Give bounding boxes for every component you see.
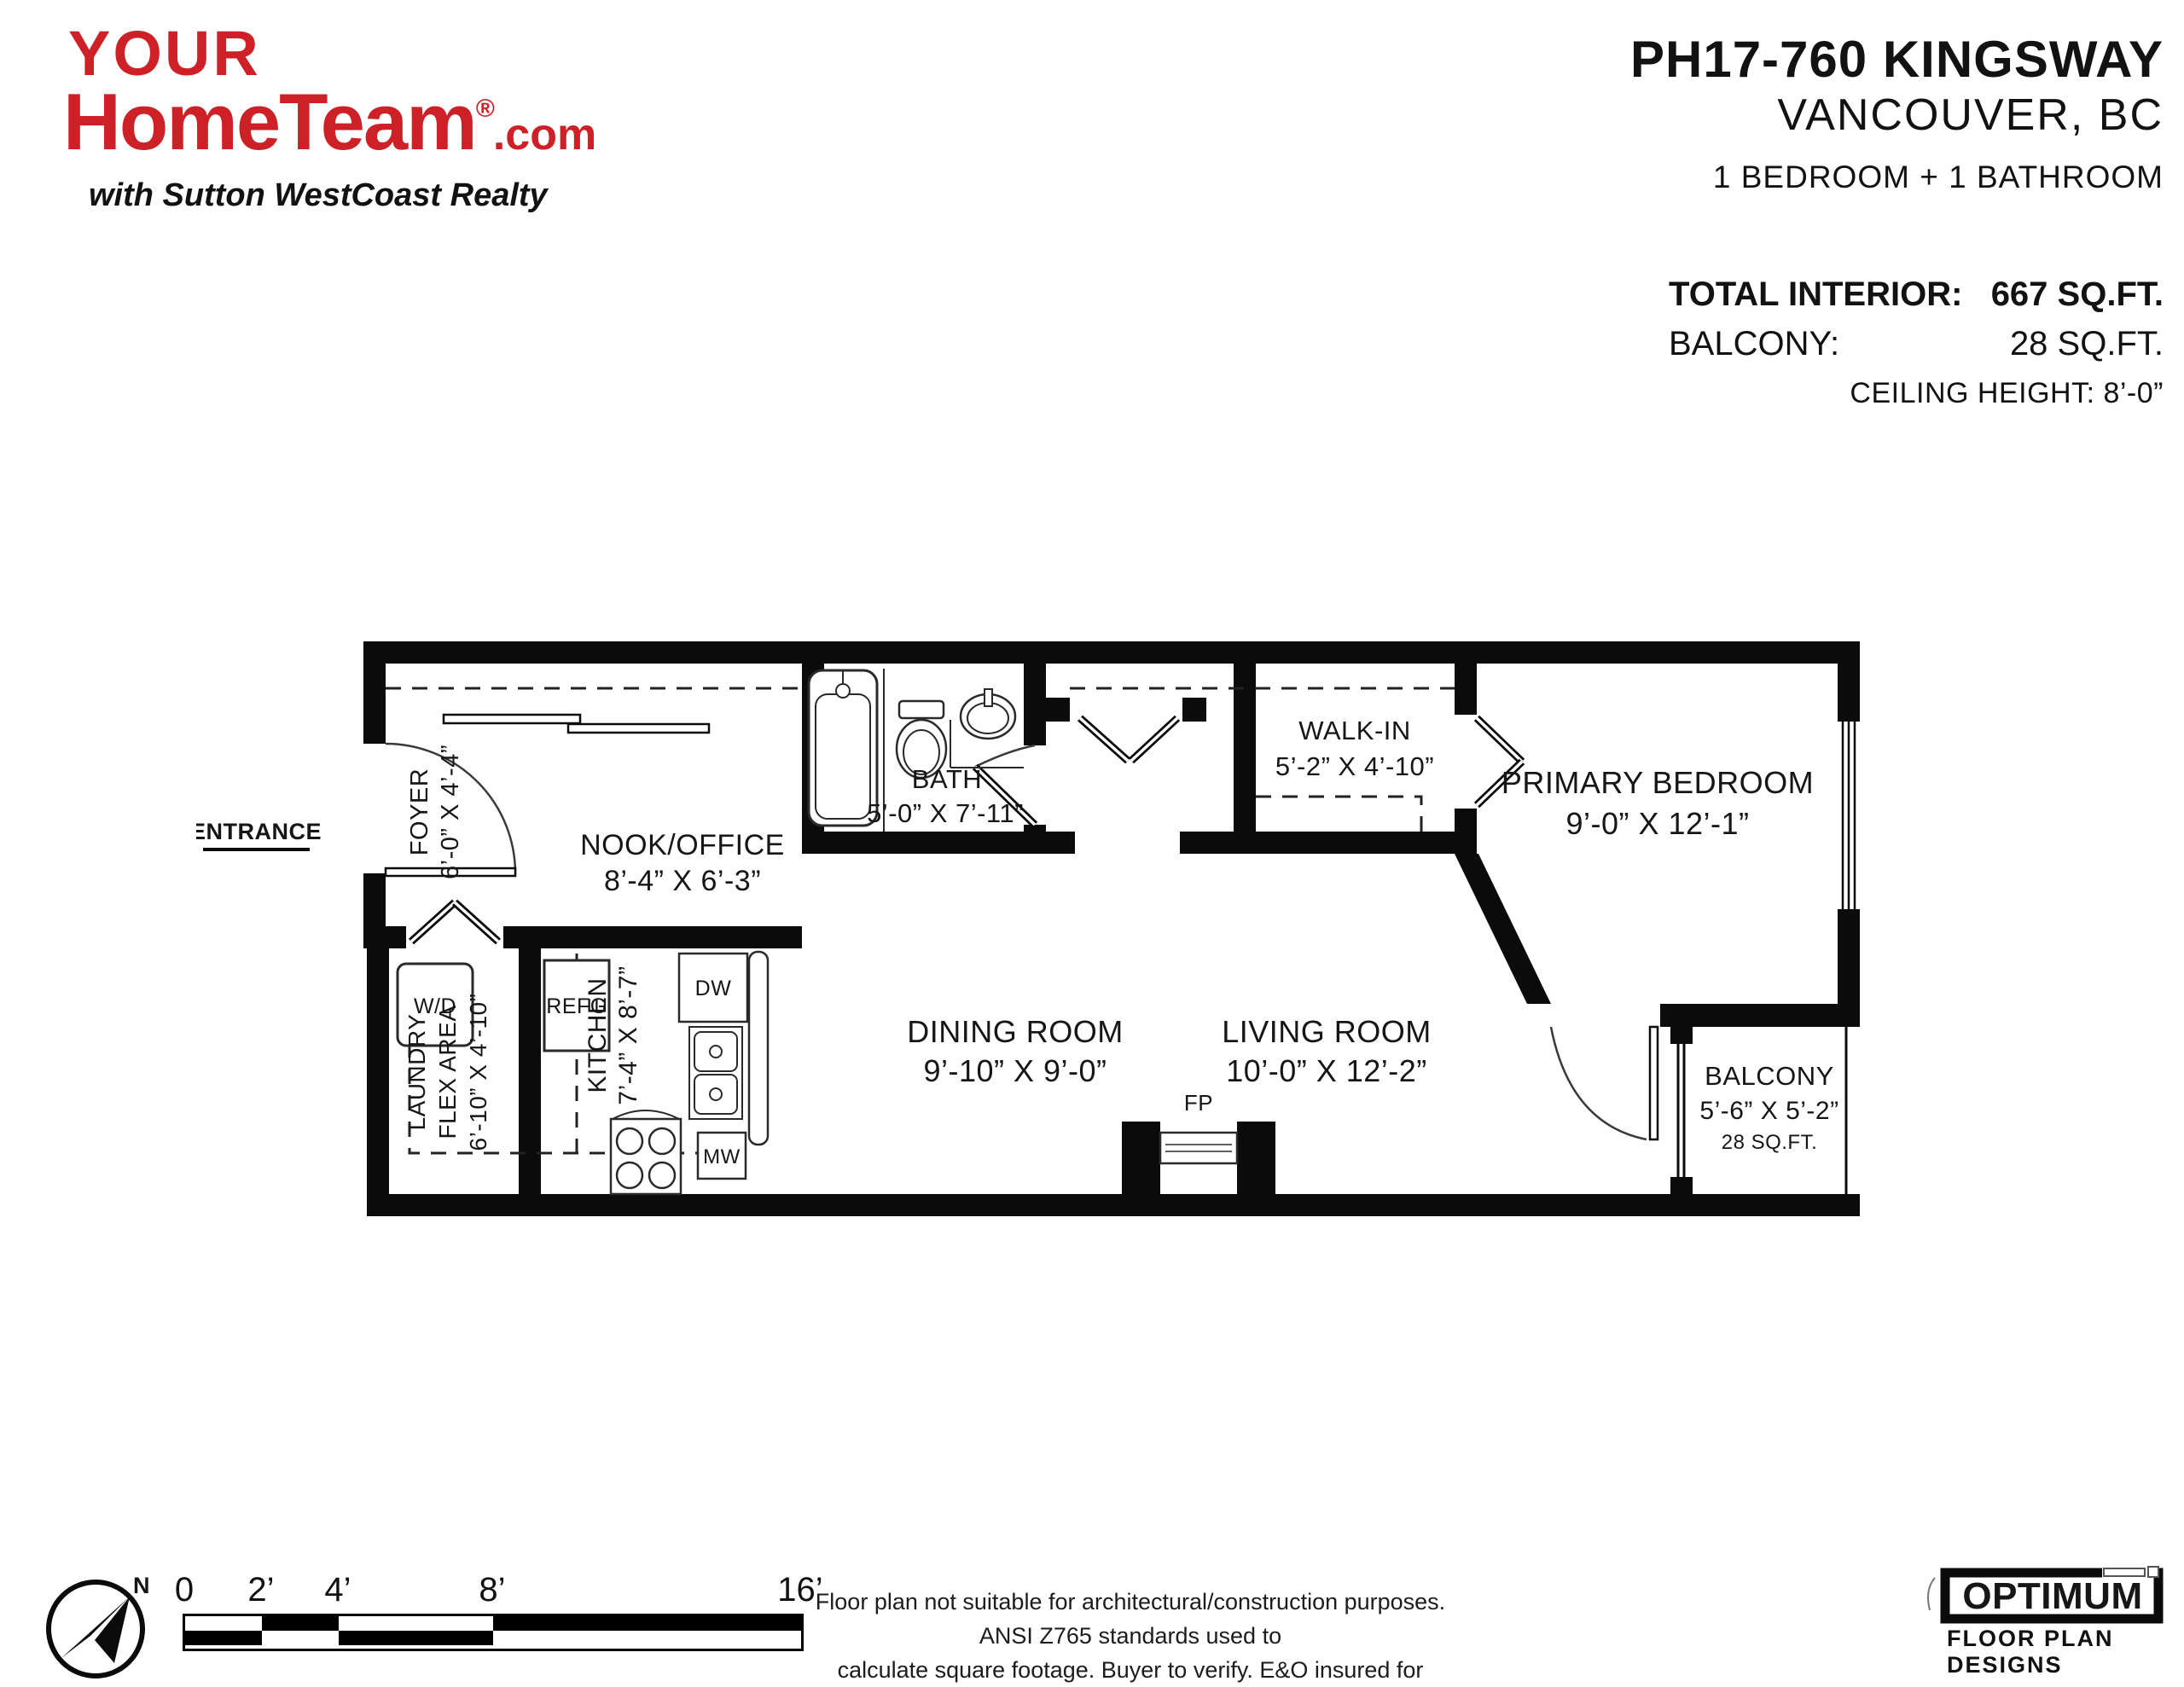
logo-line2: HomeTeam®.com — [63, 82, 596, 162]
laundry-label-1: LAUNDRY — [404, 1014, 430, 1131]
bedroom-label: PRIMARY BEDROOM — [1501, 765, 1814, 800]
logo-tagline: with Sutton WestCoast Realty — [89, 177, 596, 214]
stat-balcony-value: 28 SQ.FT. — [2010, 319, 2164, 368]
scale-bar: 0 2’ 4’ 8’ 16’ — [171, 1571, 836, 1660]
living-label: LIVING ROOM — [1222, 1014, 1432, 1049]
fireplace-insert — [1160, 1133, 1237, 1163]
scale-bar-graphic — [183, 1614, 804, 1651]
optimum-brand-name: OPTIMUM — [1962, 1575, 2142, 1617]
foyer-dims: 6’-0” X 4’-4” — [437, 745, 464, 879]
scale-tick-2: 2’ — [247, 1571, 274, 1609]
laundry-label-2: FLEX AREA — [434, 1005, 461, 1139]
listing-header: PH17-760 KINGSWAY VANCOUVER, BC 1 BEDROO… — [1630, 34, 2164, 195]
balcony-area: 28 SQ.FT. — [1722, 1131, 1818, 1154]
toilet — [899, 701, 944, 718]
kitchen-dims: 7’-4” X 8’-7” — [614, 965, 642, 1104]
optimum-logo: OPTIMUM — [1926, 1566, 2182, 1626]
stat-balcony-label: BALCONY: — [1669, 319, 1839, 368]
stat-balcony: BALCONY: 28 SQ.FT. — [1669, 319, 2164, 368]
compass-north-label: N — [133, 1573, 150, 1598]
area-stats: TOTAL INTERIOR: 667 SQ.FT. BALCONY: 28 S… — [1669, 270, 2164, 410]
bedroom-dims: 9’-0” X 12’-1” — [1565, 806, 1749, 841]
brand-logo: YOUR HomeTeam®.com with Sutton WestCoast… — [63, 22, 596, 214]
optimum-brand-sub: FLOOR PLAN DESIGNS — [1947, 1626, 2184, 1678]
foyer-closet-bypass-door — [444, 715, 580, 723]
dining-dims: 9’-10” X 9’-0” — [923, 1053, 1107, 1088]
scale-tick-0: 0 — [175, 1571, 194, 1609]
bath-dims: 5’-0” X 7’-11” — [867, 798, 1024, 828]
counter-end — [749, 952, 768, 1145]
bath-label: BATH — [912, 764, 982, 794]
scale-tick-4: 4’ — [324, 1571, 351, 1609]
kitchen-label-group: KITCHEN 7’-4” X 8’-7” — [584, 965, 642, 1104]
listing-config: 1 BEDROOM + 1 BATHROOM — [1630, 159, 2164, 195]
stat-ceiling: CEILING HEIGHT: 8’-0” — [1669, 377, 2164, 410]
bath-door-arc — [975, 745, 1035, 767]
disclaimer-line-2: calculate square footage. Buyer to verif… — [810, 1653, 1450, 1687]
dw-label: DW — [695, 977, 732, 1000]
floor-plan-drawing: NOOK/OFFICE 8’-4” X 6’-3” BATH 5’-0” X 7… — [196, 641, 1996, 1238]
bedroom-door-arc — [1551, 1027, 1647, 1139]
wd-label: W/D — [414, 994, 456, 1018]
room-labels: NOOK/OFFICE 8’-4” X 6’-3” BATH 5’-0” X 7… — [196, 716, 1839, 1168]
foyer-label-group: FOYER 6’-0” X 4’-4” — [406, 745, 464, 879]
walkin-label: WALK-IN — [1298, 716, 1411, 745]
refg-label: REFG — [546, 994, 607, 1018]
balcony-label: BALCONY — [1705, 1061, 1834, 1091]
logo-line1: YOUR — [68, 22, 596, 85]
registered-mark: ® — [476, 95, 493, 123]
listing-city: VANCOUVER, BC — [1630, 92, 2164, 139]
bedroom-door-leaf — [1650, 1027, 1658, 1139]
listing-address: PH17-760 KINGSWAY — [1630, 34, 2164, 85]
laundry-dims: 6’-10” X 4’-10” — [465, 994, 491, 1151]
nook-label: NOOK/OFFICE — [580, 829, 785, 861]
scale-tick-8: 8’ — [479, 1571, 505, 1609]
fp-label: FP — [1184, 1090, 1213, 1116]
entrance-label: ENTRANCE — [196, 819, 322, 844]
stat-interior: TOTAL INTERIOR: 667 SQ.FT. — [1669, 270, 2164, 319]
compass-icon: N — [41, 1569, 160, 1687]
dining-label: DINING ROOM — [907, 1014, 1124, 1049]
logo-suffix: .com — [493, 110, 596, 159]
foyer-label: FOYER — [406, 768, 433, 855]
hall-closet-bifold-door — [1080, 718, 1177, 761]
disclaimer-line-1: Floor plan not suitable for architectura… — [810, 1585, 1450, 1653]
mw-label: MW — [703, 1145, 741, 1168]
walkin-dims: 5’-2” X 4’-10” — [1275, 751, 1434, 781]
laundry-bifold-door — [411, 902, 498, 942]
nook-dims: 8’-4” X 6’-3” — [604, 865, 761, 897]
disclaimer: Floor plan not suitable for architectura… — [810, 1585, 1450, 1687]
balcony-dims: 5’-6” X 5’-2” — [1699, 1097, 1838, 1125]
living-dims: 10’-0” X 12’-2” — [1226, 1053, 1427, 1088]
stat-interior-label: TOTAL INTERIOR: — [1669, 270, 1962, 319]
floor-plan-page: YOUR HomeTeam®.com with Sutton WestCoast… — [0, 0, 2184, 1687]
stat-interior-value: 667 SQ.FT. — [1991, 270, 2164, 319]
